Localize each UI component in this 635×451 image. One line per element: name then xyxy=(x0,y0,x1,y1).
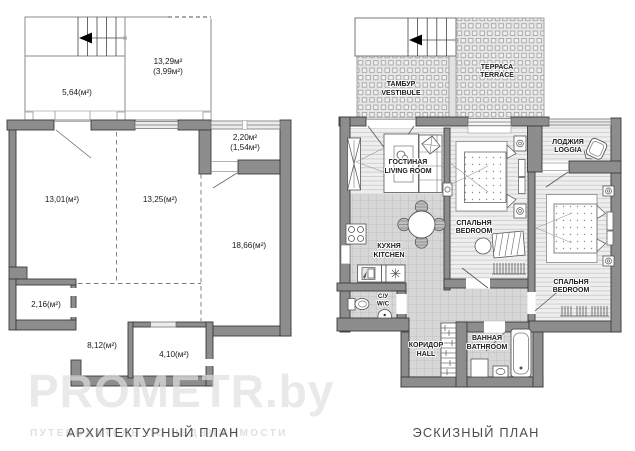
svg-text:HALL: HALL xyxy=(417,351,436,358)
svg-text:ТАМБУР: ТАМБУР xyxy=(387,81,416,88)
svg-text:BEDROOM: BEDROOM xyxy=(553,287,590,294)
svg-text:ВАННАЯ: ВАННАЯ xyxy=(472,335,502,342)
svg-text:СПАЛЬНЯ: СПАЛЬНЯ xyxy=(456,220,491,227)
svg-text:4,10(м²): 4,10(м²) xyxy=(159,350,189,359)
svg-text:LOGGIA: LOGGIA xyxy=(554,147,582,154)
svg-text:ТЕРРАСА: ТЕРРАСА xyxy=(481,64,513,71)
svg-text:ЛОДЖИЯ: ЛОДЖИЯ xyxy=(552,139,584,146)
svg-text:(3,99м²): (3,99м²) xyxy=(153,67,183,76)
svg-text:2,20м²: 2,20м² xyxy=(233,133,258,142)
svg-text:КОРИДОР: КОРИДОР xyxy=(409,342,444,349)
svg-text:С/У: С/У xyxy=(378,293,388,300)
svg-text:(1,54м²): (1,54м²) xyxy=(230,143,260,152)
svg-text:BATHROOM: BATHROOM xyxy=(467,344,508,351)
svg-text:TERRACE: TERRACE xyxy=(480,72,514,79)
svg-text:18,66(м²): 18,66(м²) xyxy=(232,241,267,250)
svg-text:СПАЛЬНЯ: СПАЛЬНЯ xyxy=(553,279,588,286)
svg-text:LIVING ROOM: LIVING ROOM xyxy=(384,168,431,175)
svg-text:ГОСТИНАЯ: ГОСТИНАЯ xyxy=(389,159,428,166)
svg-text:VESTIBULE: VESTIBULE xyxy=(381,90,421,97)
svg-text:8,12(м²): 8,12(м²) xyxy=(87,341,117,350)
svg-text:ЭСКИЗНЫЙ ПЛАН: ЭСКИЗНЫЙ ПЛАН xyxy=(412,425,539,440)
svg-text:PROMETR.by: PROMETR.by xyxy=(28,365,334,417)
svg-text:W/C: W/C xyxy=(377,301,390,308)
svg-text:13,01(м²): 13,01(м²) xyxy=(45,195,80,204)
svg-text:13,25(м²): 13,25(м²) xyxy=(143,195,178,204)
svg-text:13,29м²: 13,29м² xyxy=(154,57,183,66)
svg-text:BEDROOM: BEDROOM xyxy=(456,228,493,235)
svg-text:КУХНЯ: КУХНЯ xyxy=(377,243,401,250)
svg-text:АРХИТЕКТУРНЫЙ ПЛАН: АРХИТЕКТУРНЫЙ ПЛАН xyxy=(67,425,240,440)
svg-text:5,64(м²): 5,64(м²) xyxy=(62,88,92,97)
svg-text:KITCHEN: KITCHEN xyxy=(373,252,404,259)
svg-text:2,16(м²): 2,16(м²) xyxy=(31,300,61,309)
